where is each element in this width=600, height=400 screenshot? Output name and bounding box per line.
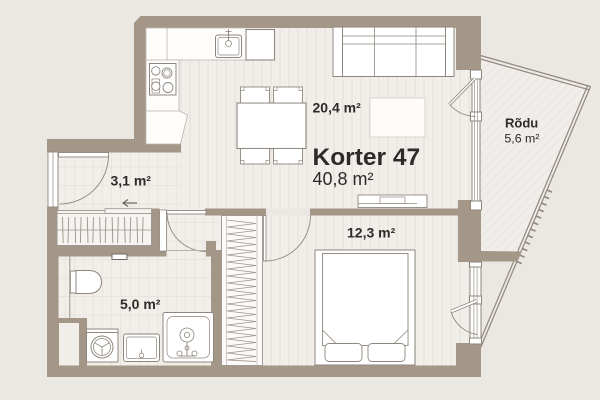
svg-text:5,0 m²: 5,0 m²	[120, 296, 161, 312]
svg-text:Rõdu: Rõdu	[505, 116, 538, 131]
svg-text:Korter 47: Korter 47	[313, 144, 421, 171]
svg-text:5,6 m²: 5,6 m²	[504, 132, 539, 146]
svg-text:3,1 m²: 3,1 m²	[111, 172, 152, 188]
svg-text:12,3 m²: 12,3 m²	[347, 225, 396, 241]
svg-text:20,4 m²: 20,4 m²	[313, 100, 362, 116]
svg-text:40,8 m²: 40,8 m²	[313, 169, 374, 189]
